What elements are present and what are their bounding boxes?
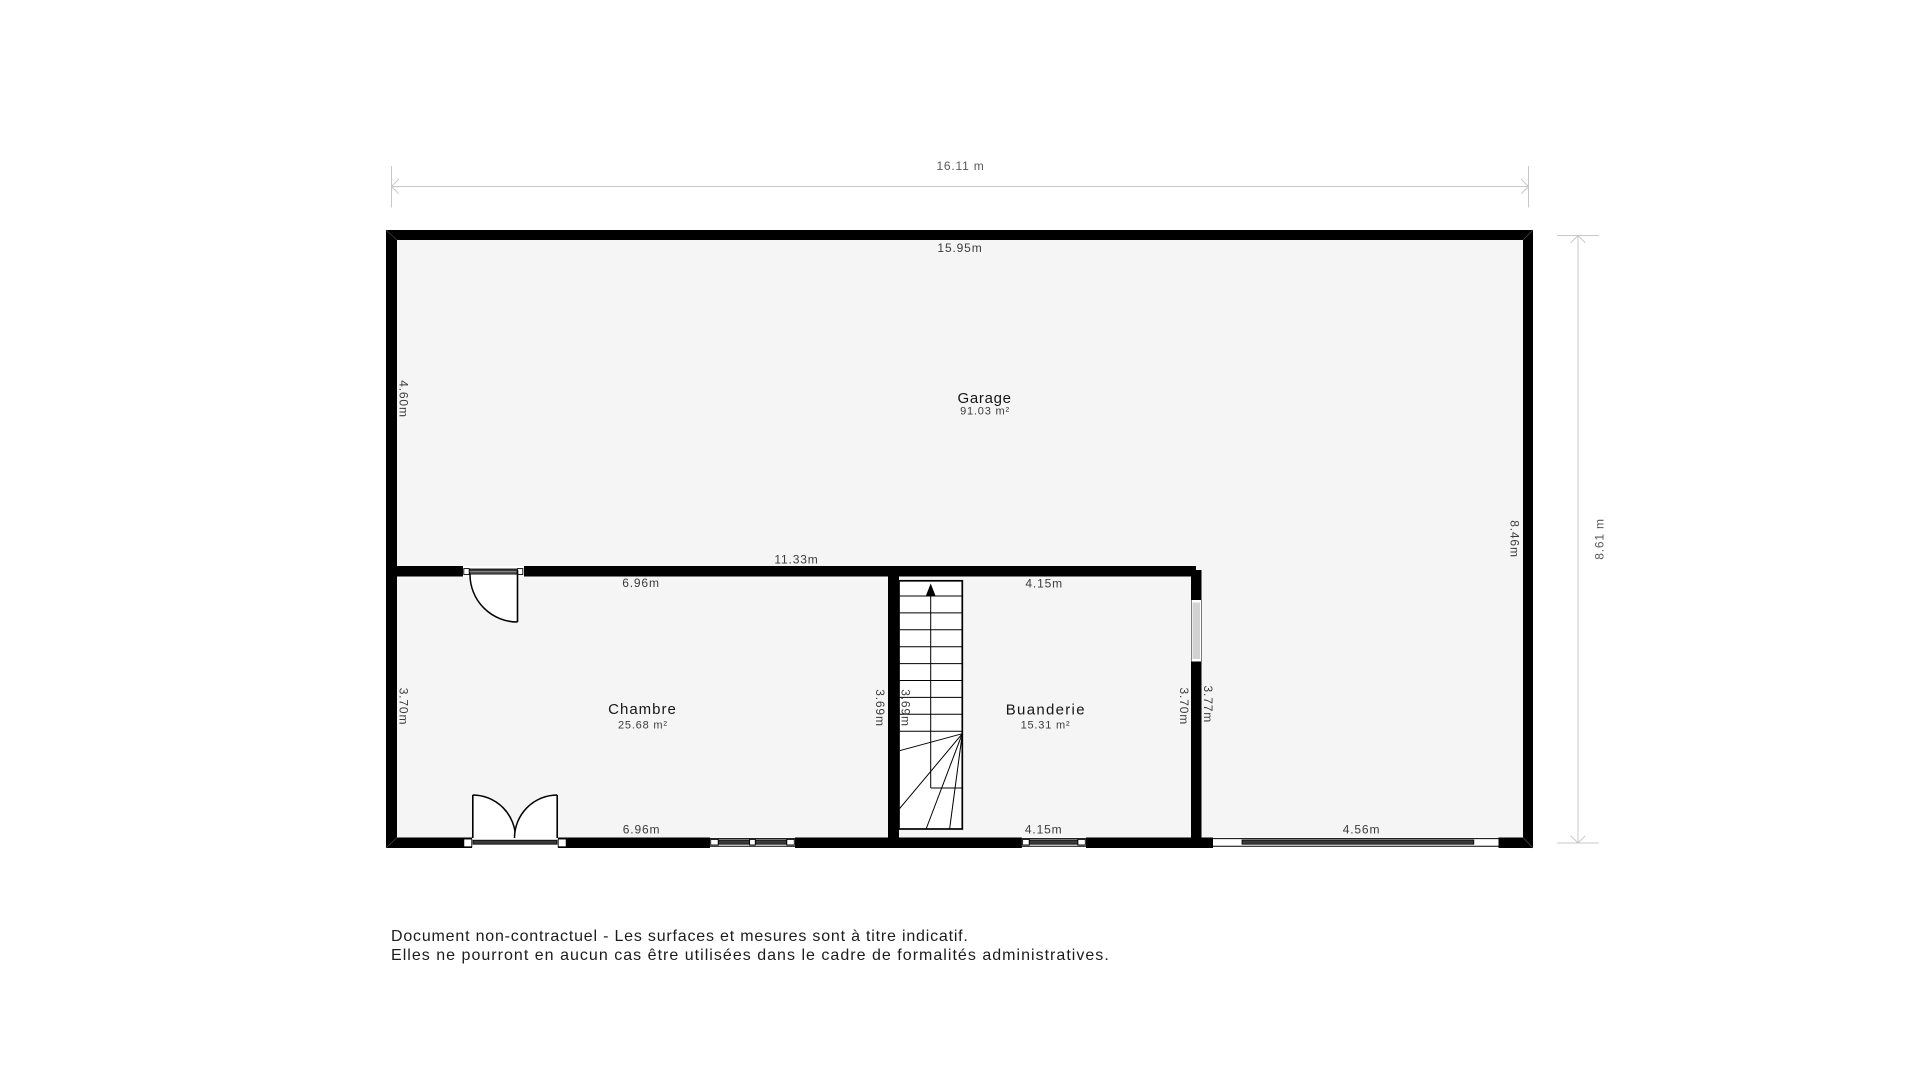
svg-text:16.11 m: 16.11 m <box>936 159 984 173</box>
svg-text:91.03 m²: 91.03 m² <box>960 406 1010 418</box>
svg-text:Elles ne pourront en aucun cas: Elles ne pourront en aucun cas être util… <box>391 947 1110 964</box>
svg-text:4.15m: 4.15m <box>1025 576 1063 590</box>
svg-text:Buanderie: Buanderie <box>1006 701 1086 718</box>
svg-text:11.33m: 11.33m <box>774 553 818 567</box>
svg-text:3.77m: 3.77m <box>1201 685 1215 723</box>
svg-text:15.31 m²: 15.31 m² <box>1021 720 1071 732</box>
svg-text:4.15m: 4.15m <box>1025 822 1063 836</box>
svg-text:4.56m: 4.56m <box>1343 822 1381 836</box>
svg-text:6.96m: 6.96m <box>622 576 660 590</box>
svg-text:3.70m: 3.70m <box>1177 687 1191 725</box>
svg-text:15.95m: 15.95m <box>937 241 982 255</box>
svg-text:3.69m: 3.69m <box>899 689 913 727</box>
svg-text:3.69m: 3.69m <box>873 689 887 727</box>
svg-text:4.60m: 4.60m <box>397 380 411 418</box>
svg-text:Garage: Garage <box>957 390 1011 407</box>
svg-text:3.70m: 3.70m <box>397 688 411 726</box>
svg-text:Chambre: Chambre <box>608 701 677 718</box>
svg-text:Document non-contractuel - Les: Document non-contractuel - Les surfaces … <box>391 928 969 945</box>
svg-text:6.96m: 6.96m <box>623 822 661 836</box>
svg-text:8.61 m: 8.61 m <box>1593 518 1607 560</box>
svg-text:25.68 m²: 25.68 m² <box>618 719 668 731</box>
svg-text:8.46m: 8.46m <box>1508 520 1522 558</box>
